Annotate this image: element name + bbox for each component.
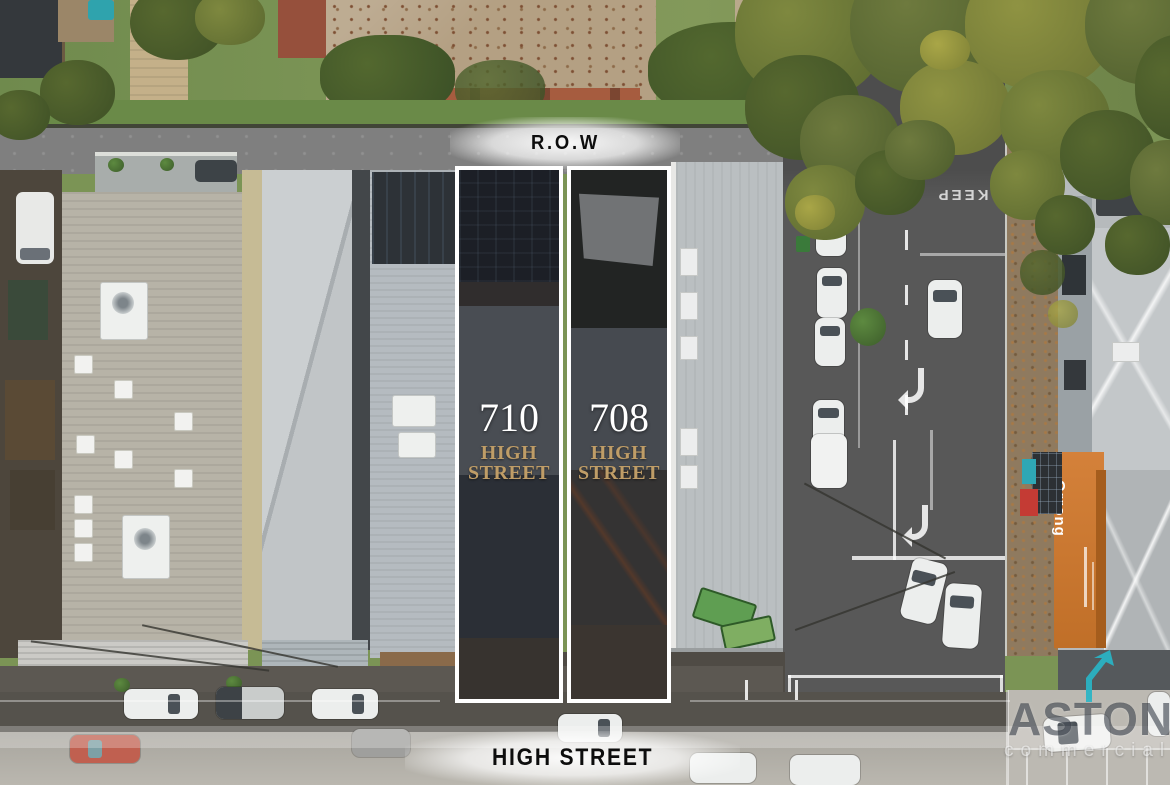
skylight bbox=[76, 435, 95, 454]
wheelie-bin bbox=[797, 192, 812, 209]
road-line bbox=[920, 253, 1005, 256]
car-at-intersection bbox=[942, 583, 982, 649]
car-windshield bbox=[821, 214, 841, 224]
small-sign-text bbox=[1092, 562, 1094, 610]
parked-van bbox=[811, 434, 847, 488]
roof-box bbox=[680, 428, 698, 456]
skylight bbox=[1112, 342, 1140, 362]
awning-edge bbox=[1096, 470, 1106, 648]
roof-window bbox=[1062, 255, 1086, 295]
parked-car bbox=[312, 689, 378, 719]
ac-unit bbox=[392, 395, 436, 427]
car-windshield bbox=[168, 694, 180, 714]
car-windshield bbox=[933, 290, 957, 302]
skylight bbox=[74, 543, 93, 562]
road-line bbox=[0, 700, 440, 702]
keep-road-marking: KEEP bbox=[932, 186, 992, 203]
red-sign bbox=[1020, 489, 1038, 516]
parking-lane-line bbox=[858, 168, 860, 448]
roof-box bbox=[680, 248, 698, 276]
skylight bbox=[74, 519, 93, 538]
small-sign-text bbox=[1084, 547, 1087, 607]
pool bbox=[88, 0, 114, 20]
property-label: 708 HIGH STREET bbox=[571, 398, 667, 483]
neighbour-building bbox=[671, 162, 788, 660]
van-windshield bbox=[20, 248, 50, 260]
roof-window bbox=[1064, 360, 1086, 390]
row-label-text: R.O.W bbox=[531, 132, 600, 155]
address-street: HIGH STREET bbox=[459, 444, 559, 483]
lane-line bbox=[893, 440, 896, 560]
road-line bbox=[690, 700, 1010, 702]
roof-box bbox=[680, 465, 698, 489]
car-windshield bbox=[822, 276, 842, 286]
ac-unit bbox=[398, 432, 436, 458]
roof-box bbox=[680, 336, 698, 360]
turn-arrow-marking bbox=[898, 368, 924, 410]
roof bbox=[1058, 196, 1092, 454]
skylight bbox=[174, 412, 193, 431]
roof-gap bbox=[352, 170, 370, 650]
yard-clutter bbox=[8, 280, 48, 340]
lane-dash-line bbox=[795, 680, 798, 725]
corrugated-roof bbox=[62, 192, 242, 650]
roof bbox=[0, 0, 65, 78]
address-number: 708 bbox=[571, 398, 667, 438]
car-at-intersection bbox=[899, 557, 949, 626]
brick-house bbox=[278, 0, 326, 58]
address-number: 710 bbox=[459, 398, 559, 438]
watermark-division: commercial bbox=[1004, 740, 1170, 762]
ac-fan bbox=[112, 292, 134, 314]
roof-box bbox=[680, 292, 698, 320]
driving-car bbox=[928, 280, 962, 338]
stop-line bbox=[852, 556, 1008, 560]
car-windshield bbox=[818, 408, 839, 418]
wheelie-bin bbox=[797, 213, 812, 230]
wheelie-bin bbox=[796, 236, 810, 252]
property-label: 710 HIGH STREET bbox=[459, 398, 559, 483]
high-street-label: HIGH STREET bbox=[405, 731, 740, 785]
watermark-brand: ASTON bbox=[1008, 692, 1170, 746]
aerial-photo: KEEP Orrong bbox=[0, 0, 1170, 785]
roof bbox=[262, 170, 354, 658]
skylight bbox=[74, 495, 93, 514]
skylight bbox=[74, 355, 93, 374]
path bbox=[130, 0, 188, 105]
car-windshield bbox=[352, 694, 364, 714]
parked-car bbox=[124, 689, 198, 719]
side-road: KEEP bbox=[783, 0, 1005, 696]
lane-dash-line bbox=[745, 680, 748, 725]
parked-truck bbox=[1096, 168, 1158, 216]
roof-box bbox=[1125, 255, 1153, 271]
ac-fan bbox=[134, 528, 156, 550]
car-windshield bbox=[950, 595, 975, 609]
skylight bbox=[174, 469, 193, 488]
car-hood bbox=[216, 687, 242, 719]
address-street: HIGH STREET bbox=[571, 444, 667, 483]
property-outline-708: 708 HIGH STREET bbox=[567, 166, 671, 703]
high-street-label-text: HIGH STREET bbox=[492, 744, 653, 772]
skylight bbox=[114, 380, 133, 399]
lane-line bbox=[930, 430, 933, 510]
street-tree bbox=[850, 308, 886, 346]
property-outline-710: 710 HIGH STREET bbox=[455, 166, 563, 703]
row-label: R.O.W bbox=[450, 117, 680, 169]
plant bbox=[160, 158, 174, 171]
driving-car bbox=[790, 755, 860, 785]
intersection-line bbox=[788, 675, 1003, 678]
terrace-furniture bbox=[195, 160, 237, 182]
dark-roof-deck bbox=[372, 172, 456, 264]
plant bbox=[108, 158, 124, 172]
teal-sign bbox=[1022, 459, 1036, 484]
skylight bbox=[114, 450, 133, 469]
car-windshield bbox=[820, 326, 840, 336]
yard-clutter bbox=[5, 380, 55, 460]
yard-clutter bbox=[10, 470, 55, 530]
